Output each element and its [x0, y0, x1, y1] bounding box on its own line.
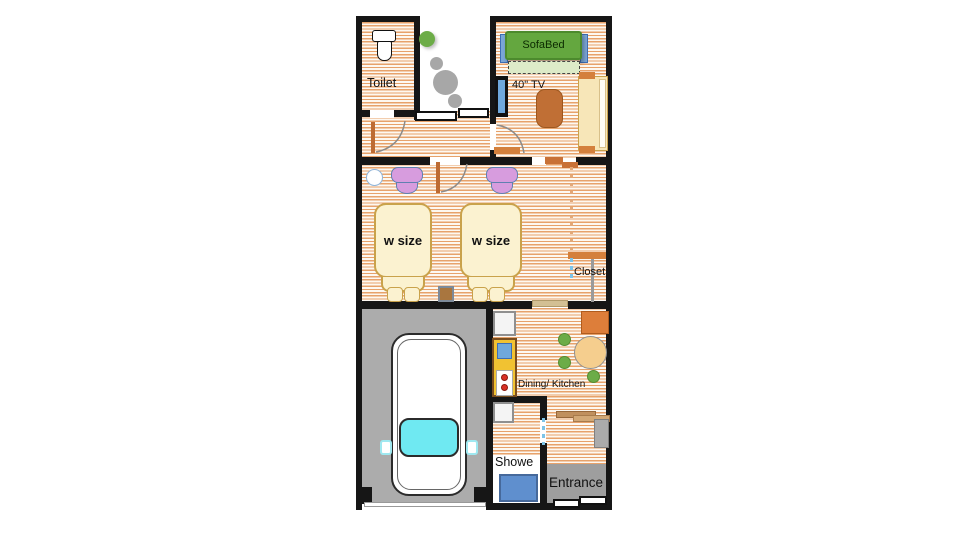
slipper-4 [489, 287, 505, 302]
closet-divider-dotted-line [570, 167, 573, 255]
wall-entry-left-bottom [540, 443, 547, 510]
slipper-1 [387, 287, 403, 302]
slipper-3 [472, 287, 488, 302]
dining-chair-2 [558, 356, 571, 369]
stove-burner-2 [501, 384, 508, 391]
entrance-label: Entrance [549, 476, 603, 490]
sink [497, 343, 512, 359]
kitchen-cabinet [581, 311, 609, 334]
garage-door [364, 502, 486, 507]
entrance-door-panel-1 [553, 499, 580, 508]
entrance-door-panel-2 [579, 496, 607, 505]
wall-top-toilet [356, 16, 420, 22]
sofa-bed: SofaBed [505, 31, 582, 60]
toilet-door-opening [370, 110, 394, 118]
bed-2-label: w size [460, 234, 522, 247]
washer [493, 402, 514, 423]
bedroom-living-opening [532, 157, 546, 165]
wall-garage-right [486, 301, 493, 510]
coffee-table [536, 89, 563, 128]
sliding-door-panel-2 [458, 108, 489, 118]
toilet-label: Toilet [367, 77, 396, 90]
car-mirror-right [466, 440, 478, 455]
nightstand [438, 286, 454, 302]
fridge [493, 311, 516, 336]
car-roof-outline [397, 339, 461, 490]
wall-left [356, 16, 362, 510]
shoe-cabinet [594, 419, 609, 448]
stove-burner-1 [501, 374, 508, 381]
closet-shelf [568, 252, 606, 259]
bedroom-dining-threshold [532, 300, 568, 307]
chair-2-backrest [486, 167, 518, 183]
wall-bedroom-bottom-1 [356, 301, 532, 309]
dining-chair-1 [558, 333, 571, 346]
car-mirror-left [380, 440, 392, 455]
closet-label: Closet [574, 267, 605, 278]
dining-kitchen-label: Dining/ Kitchen [518, 380, 585, 390]
wall-toilet-right [414, 16, 420, 120]
toilet-door-leaf [371, 122, 375, 153]
wall-bedroom-top-2 [460, 157, 532, 165]
bedroom-door-leaf [436, 162, 440, 193]
bench-armrest-bottom [579, 146, 595, 153]
plant-icon [419, 31, 435, 47]
wall-entry-left-top [540, 396, 547, 420]
shower-label: Showe [495, 456, 533, 469]
toilet-bowl [377, 41, 392, 61]
living-door-step [494, 147, 520, 154]
dining-table [574, 336, 607, 369]
chair-1-backrest [391, 167, 423, 183]
stepping-stone-small-2 [448, 94, 462, 108]
stepping-stone-large [433, 70, 458, 95]
bed-1-label: w size [374, 234, 432, 247]
wall-top-living [490, 16, 612, 22]
floor-plan: Toilet SofaBed 40" TV w size w size Clos… [0, 0, 960, 540]
closet-door-dashes [570, 258, 573, 282]
wall-bedroom-bottom-2 [568, 301, 612, 309]
shower-tray [499, 474, 538, 502]
slipper-2 [404, 287, 420, 302]
sliding-door-panel-1 [415, 111, 457, 121]
entry-door-dashes [542, 418, 545, 445]
wall-bedroom-top-1 [356, 157, 430, 165]
round-side-table [366, 169, 383, 186]
sofabed-label: SofaBed [522, 40, 564, 51]
car-windshield [399, 418, 459, 457]
bedroom-door-opening [430, 157, 460, 165]
wall-bottom-shower [486, 503, 547, 510]
bench-backrest [599, 79, 606, 148]
bench-armrest-top [579, 72, 595, 79]
sofa-bed-extension [508, 61, 580, 74]
tv-screen [498, 80, 505, 113]
stepping-stone-small-1 [430, 57, 443, 70]
wall-toilet-bottom-left [356, 110, 370, 117]
wall-bedroom-top-3 [576, 157, 612, 165]
dining-chair-3 [587, 370, 600, 383]
step-1 [545, 157, 563, 164]
